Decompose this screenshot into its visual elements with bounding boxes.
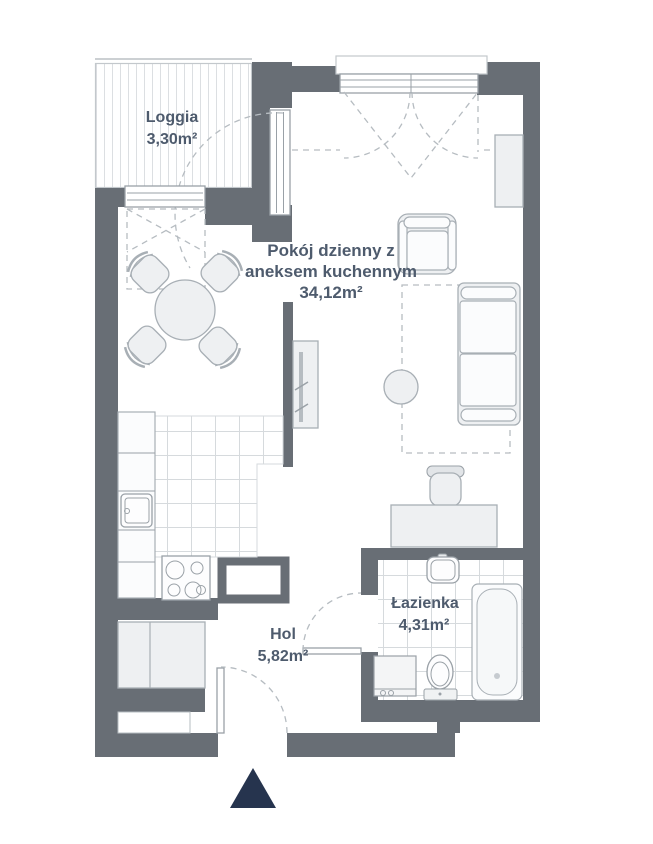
wall-left [95,205,118,733]
window-tilt-marks [344,92,478,178]
coffee-table [384,370,418,404]
washing-machine [374,656,416,696]
sofa [458,283,520,425]
wardrobe [118,622,205,688]
dining-table [155,280,215,340]
bathroom: Łazienka 4,31m² [374,554,523,700]
stove [162,556,210,600]
dining-set [120,246,246,372]
floor-plan-canvas: Loggia 3,30m² [0,0,653,844]
wall-right [523,62,540,722]
tv-cabinet [293,341,318,428]
ventilation-shaft [222,561,285,599]
wall-top-left-of-window [292,66,340,92]
desk [391,505,497,547]
loggia-area: 3,30m² [147,131,198,148]
hall-label: Hol [270,626,296,643]
bathroom-door-leaf [303,648,361,654]
bathtub [472,584,522,700]
kitchen-window [125,186,205,207]
entrance-arrow [230,768,276,808]
bathroom-label: Łazienka [391,595,459,612]
wall-bottom-right [287,733,455,757]
wall-cabinet [495,135,523,207]
bathroom-sink [427,554,459,583]
desk-chair [430,473,461,506]
wall-niche [118,712,190,733]
wall-step-connector [437,722,460,733]
entrance-door-leaf [217,668,224,733]
hall: Hol 5,82m² [118,622,308,688]
living-room-label-line2: aneksem kuchennym [245,262,417,281]
living-room-label-line1: Pokój dzienny z [267,241,395,260]
kitchen-floor-tiles [155,416,283,557]
loggia-door [270,110,290,215]
bathroom-area: 4,31m² [399,617,450,634]
main-window [340,74,478,93]
kitchen-window-tilt-marks [127,209,205,252]
door-swing-bathroom [303,593,361,651]
wall-bathroom-bottom [361,700,540,722]
wall-tv-stub [283,302,293,467]
floor-plan: Loggia 3,30m² [0,0,653,844]
wall-bathroom-left-upper [361,548,378,595]
wall-kitchen-hall [95,598,218,620]
desk-and-chair [391,466,497,547]
wall-top-left-block [252,62,292,108]
loggia-label: Loggia [146,109,199,126]
living-room-area: 34,12m² [299,283,363,302]
wall-hall-band [95,688,205,712]
wall-bottom-left [95,733,218,757]
door-swing-entrance [221,667,287,733]
balcony-slab [336,56,487,74]
hall-area: 5,82m² [258,648,309,665]
door-swing-window-left [344,92,410,158]
door-swing-window-right [412,92,478,158]
loggia-room: Loggia 3,30m² [95,59,252,188]
